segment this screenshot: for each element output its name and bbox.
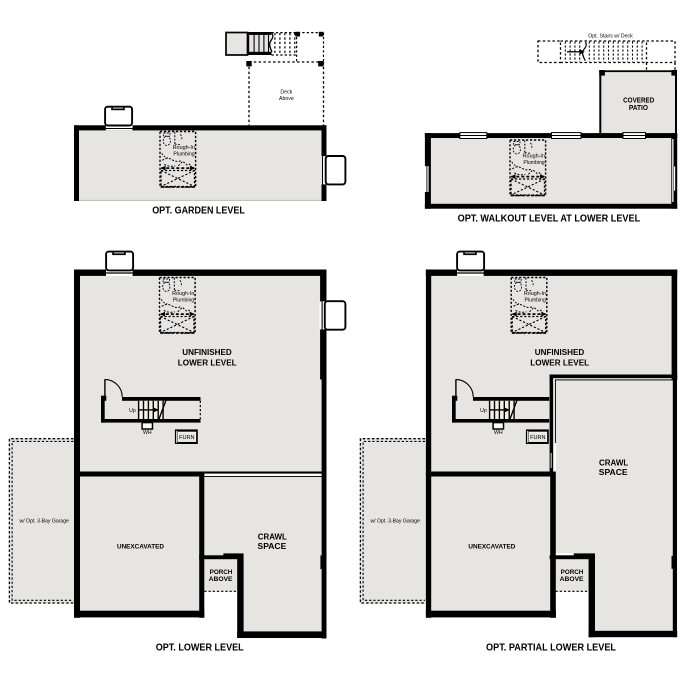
svg-text:Up: Up <box>480 408 487 414</box>
svg-text:FURN: FURN <box>530 435 545 441</box>
svg-text:OPT. LOWER LEVEL: OPT. LOWER LEVEL <box>156 642 244 653</box>
svg-text:PORCH: PORCH <box>561 569 584 576</box>
svg-text:OPT. GARDEN LEVEL: OPT. GARDEN LEVEL <box>152 206 245 217</box>
svg-text:WH: WH <box>494 430 503 436</box>
svg-text:SPACE: SPACE <box>258 542 288 551</box>
svg-text:UNFINISHED: UNFINISHED <box>535 348 585 357</box>
svg-text:LOWER LEVEL: LOWER LEVEL <box>178 358 237 367</box>
svg-text:CRAWL: CRAWL <box>258 533 287 542</box>
svg-text:FURN: FURN <box>179 435 194 441</box>
svg-text:UNFINISHED: UNFINISHED <box>182 348 232 357</box>
svg-text:w/ Opt. 3-Bay Garage: w/ Opt. 3-Bay Garage <box>371 518 421 524</box>
svg-text:UNEXCAVATED: UNEXCAVATED <box>468 543 515 550</box>
svg-text:WH: WH <box>143 430 152 436</box>
svg-text:LOWER LEVEL: LOWER LEVEL <box>530 358 589 367</box>
svg-text:UNEXCAVATED: UNEXCAVATED <box>117 543 164 550</box>
svg-text:w/ Opt. 3-Bay Garage: w/ Opt. 3-Bay Garage <box>20 518 70 524</box>
svg-text:Opt. Stairs w/ Deck: Opt. Stairs w/ Deck <box>588 34 633 40</box>
svg-text:PATIO: PATIO <box>629 105 649 112</box>
svg-text:OPT. WALKOUT LEVEL AT LOWER LE: OPT. WALKOUT LEVEL AT LOWER LEVEL <box>458 213 641 224</box>
svg-text:CRAWL: CRAWL <box>599 458 628 467</box>
svg-text:PORCH: PORCH <box>210 569 233 576</box>
svg-text:ABOVE: ABOVE <box>560 576 584 583</box>
svg-text:Up: Up <box>129 408 136 414</box>
svg-text:Above: Above <box>279 96 294 102</box>
svg-text:OPT. PARTIAL LOWER LEVEL: OPT. PARTIAL LOWER LEVEL <box>486 642 616 653</box>
svg-text:SPACE: SPACE <box>599 468 629 477</box>
svg-text:ABOVE: ABOVE <box>209 576 233 583</box>
svg-text:Deck: Deck <box>280 90 292 96</box>
svg-text:COVERED: COVERED <box>623 97 654 104</box>
